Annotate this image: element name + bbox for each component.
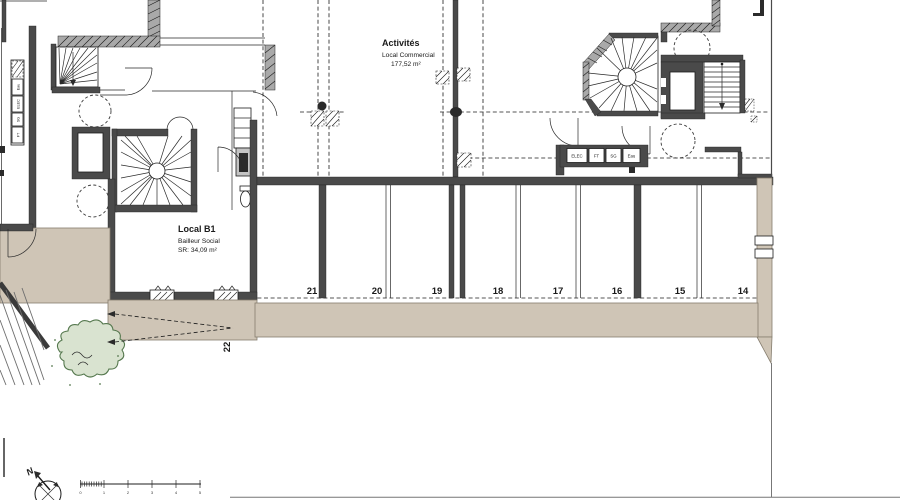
door-arc-spiral	[167, 117, 193, 130]
door-arc-core	[550, 118, 578, 146]
scale-tick-label: 2	[127, 490, 130, 495]
parking-row: 21 20 19 18 17 16 15 14	[257, 177, 773, 298]
activites-area: Activités Local Commercial 177,52 m²	[311, 0, 471, 177]
utility-box-label: ELEC	[17, 99, 21, 109]
spiral-staircase-b1	[112, 117, 197, 212]
floor-plan-canvas: Eau ELEC SG FT Activités Local Commercia…	[0, 0, 900, 500]
window-opening	[755, 236, 773, 245]
ventilation-grille	[150, 286, 174, 301]
turning-circle	[77, 185, 109, 217]
turning-circle	[661, 124, 695, 158]
staircase-right	[704, 60, 745, 113]
door-arc-activites	[253, 92, 277, 116]
terrace-slab	[0, 228, 110, 303]
column-marker-small	[745, 99, 757, 122]
scale-tick-label: 0	[79, 490, 82, 495]
utility-shaft-left: Eau ELEC SG FT	[0, 26, 36, 228]
utility-box-label: FT	[17, 132, 21, 137]
utility-box-label: SG	[610, 154, 617, 159]
wall-bracket	[753, 0, 764, 16]
utility-box-label: FT	[594, 154, 600, 159]
utility-box-label: Eau	[628, 154, 636, 159]
room-subtitle: Local Commercial	[382, 52, 435, 59]
bush-icon	[51, 320, 124, 386]
utility-box-label: SG	[17, 117, 21, 122]
scale-tick-label: 4	[175, 490, 178, 495]
utility-row-right: ELEC FT SG Eau	[556, 145, 648, 175]
spiral-staircase-right	[583, 33, 658, 116]
room-area: 177,52 m²	[391, 61, 421, 68]
utility-box-label: ELEC	[571, 154, 582, 159]
room-area: SR: 34,09 m²	[178, 247, 218, 254]
scale-tick-label: 5	[199, 490, 202, 495]
column-markers-center	[311, 68, 471, 167]
stairwell-top-left	[0, 0, 277, 116]
ventilation-grille	[214, 286, 238, 301]
parking-space-label: 20	[372, 286, 383, 297]
central-wall	[453, 0, 458, 177]
b1-right-wall	[250, 120, 257, 300]
staircase-top-left	[51, 44, 100, 93]
parking-space-label: 17	[553, 286, 564, 297]
parking-space-label: 16	[612, 286, 623, 297]
parking-back-wall	[257, 177, 773, 185]
core-right: ELEC FT SG Eau	[550, 0, 772, 178]
room-subtitle: Bailleur Social	[178, 238, 220, 245]
door-arc-corridor	[125, 68, 152, 95]
room-title: Activités	[382, 38, 420, 48]
parking-space-label: 21	[307, 286, 318, 297]
scale-tick-label: 1	[103, 490, 106, 495]
north-label: N	[25, 465, 36, 477]
turning-circle	[79, 95, 111, 127]
floor-plan-drawing: Eau ELEC SG FT Activités Local Commercia…	[0, 0, 900, 500]
parking-space-label: 15	[675, 286, 686, 297]
frame-lines	[4, 438, 900, 497]
parking-space-label: 19	[432, 286, 443, 297]
parking-space-label: 22	[222, 342, 233, 353]
facade-right	[755, 0, 773, 498]
room-title: Local B1	[178, 224, 216, 234]
scale-tick-label: 3	[151, 490, 154, 495]
parking-space-label: 14	[738, 286, 749, 297]
elevator-left	[72, 127, 110, 179]
scale-bar: 0 1 2 3 4 5	[79, 480, 202, 495]
drive-aisle-slab	[255, 303, 758, 337]
column-marker	[12, 61, 23, 77]
window-opening	[755, 249, 773, 258]
north-compass: N	[25, 465, 61, 500]
toilet	[240, 186, 251, 191]
parking-space-label: 18	[493, 286, 504, 297]
utility-box-label: Eau	[17, 84, 21, 91]
